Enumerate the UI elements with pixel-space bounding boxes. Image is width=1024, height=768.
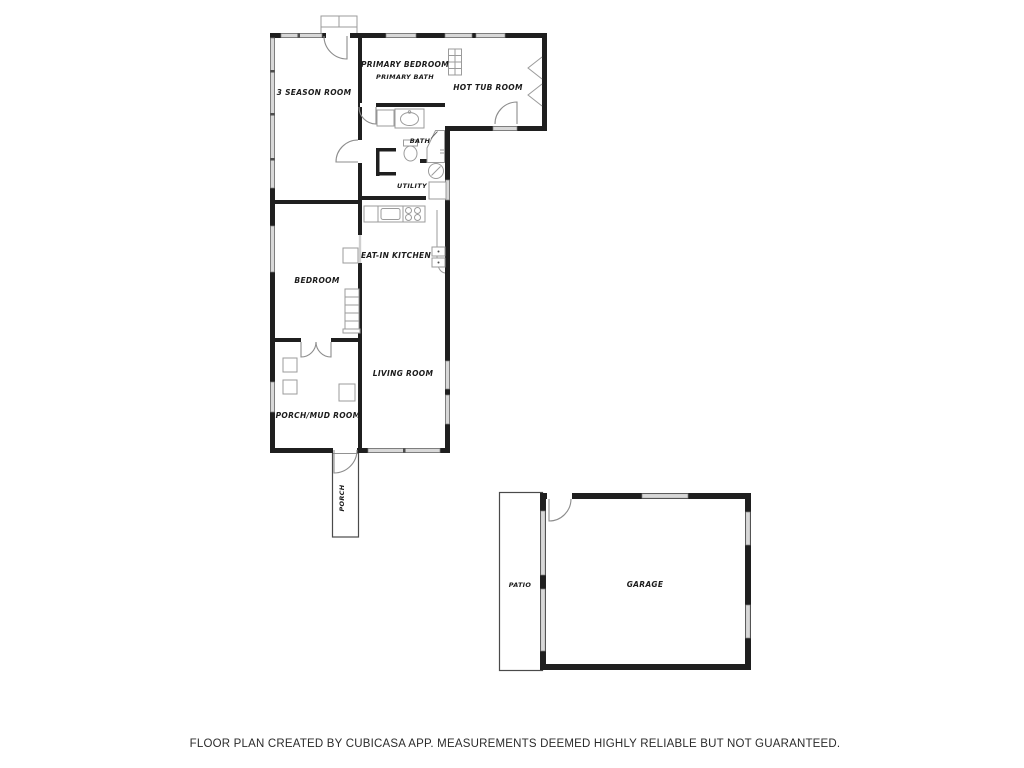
- bedroom-closet: [343, 289, 360, 333]
- bedroom-door: [343, 248, 358, 263]
- footer-disclaimer: FLOOR PLAN CREATED BY CUBICASA APP. MEAS…: [190, 738, 841, 750]
- label-eat-in-kitchen: EAT-IN KITCHEN: [361, 251, 432, 260]
- entry-door: [324, 36, 347, 59]
- label-bath: BATH: [410, 137, 431, 145]
- label-three-season-room: 3 SEASON ROOM: [277, 88, 352, 97]
- hall-door: [336, 140, 358, 162]
- hot-tub-door: [495, 102, 517, 124]
- label-primary-bath: PRIMARY BATH: [376, 73, 434, 81]
- bath-fixtures: [377, 109, 445, 163]
- floor-plan-svg: 3 SEASON ROOM PRIMARY BEDROOM PRIMARY BA…: [0, 0, 1024, 768]
- mud-room-furniture: [283, 358, 355, 401]
- label-garage: GARAGE: [627, 580, 664, 589]
- label-patio: PATIO: [509, 581, 532, 589]
- label-porch: PORCH: [338, 484, 346, 511]
- double-door-right: [316, 342, 331, 357]
- label-porch-mud-room: PORCH/MUD ROOM: [276, 411, 361, 420]
- utility-fixtures: [429, 164, 447, 200]
- label-utility: UTILITY: [397, 182, 428, 190]
- double-door-left: [301, 342, 316, 357]
- label-primary-bedroom: PRIMARY BEDROOM: [361, 60, 449, 69]
- window-chevrons: [528, 57, 542, 106]
- label-living-room: LIVING ROOM: [373, 369, 434, 378]
- entry-steps: [321, 16, 357, 35]
- kitchen-fixtures: [364, 206, 445, 273]
- label-bedroom: BEDROOM: [294, 276, 339, 285]
- hot-tub-fixtures: [449, 49, 543, 106]
- label-hot-tub-room: HOT TUB ROOM: [453, 83, 523, 92]
- garage-door: [549, 499, 571, 521]
- floor-plan-page: 3 SEASON ROOM PRIMARY BEDROOM PRIMARY BA…: [0, 0, 1024, 768]
